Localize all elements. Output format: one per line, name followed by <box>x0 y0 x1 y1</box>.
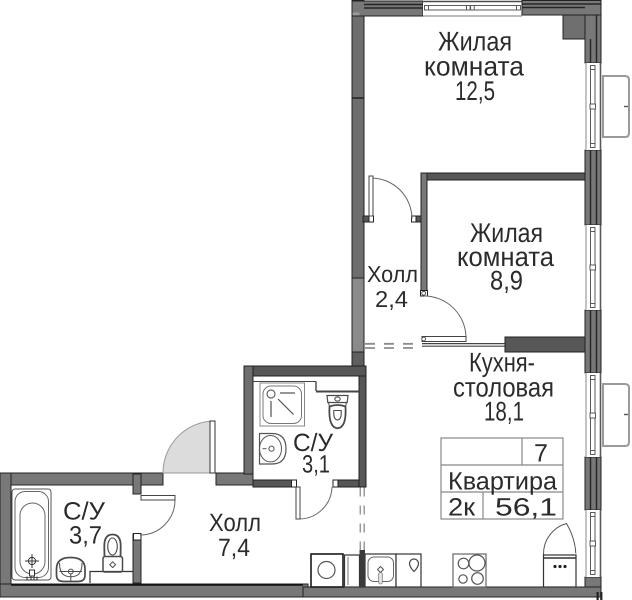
svg-text:8,9: 8,9 <box>490 266 523 296</box>
svg-text:Квартира: Квартира <box>448 468 557 496</box>
svg-text:7,4: 7,4 <box>218 534 250 562</box>
svg-text:12,5: 12,5 <box>455 76 495 106</box>
svg-text:Холл: Холл <box>367 261 418 287</box>
svg-text:7: 7 <box>534 440 548 468</box>
svg-text:56,1: 56,1 <box>495 494 557 522</box>
svg-text:3,7: 3,7 <box>69 522 102 550</box>
svg-text:18,1: 18,1 <box>484 397 524 427</box>
svg-text:Холл: Холл <box>209 509 261 537</box>
svg-text:3,1: 3,1 <box>302 451 330 479</box>
svg-text:2к: 2к <box>448 494 476 522</box>
svg-text:2,4: 2,4 <box>375 286 408 312</box>
